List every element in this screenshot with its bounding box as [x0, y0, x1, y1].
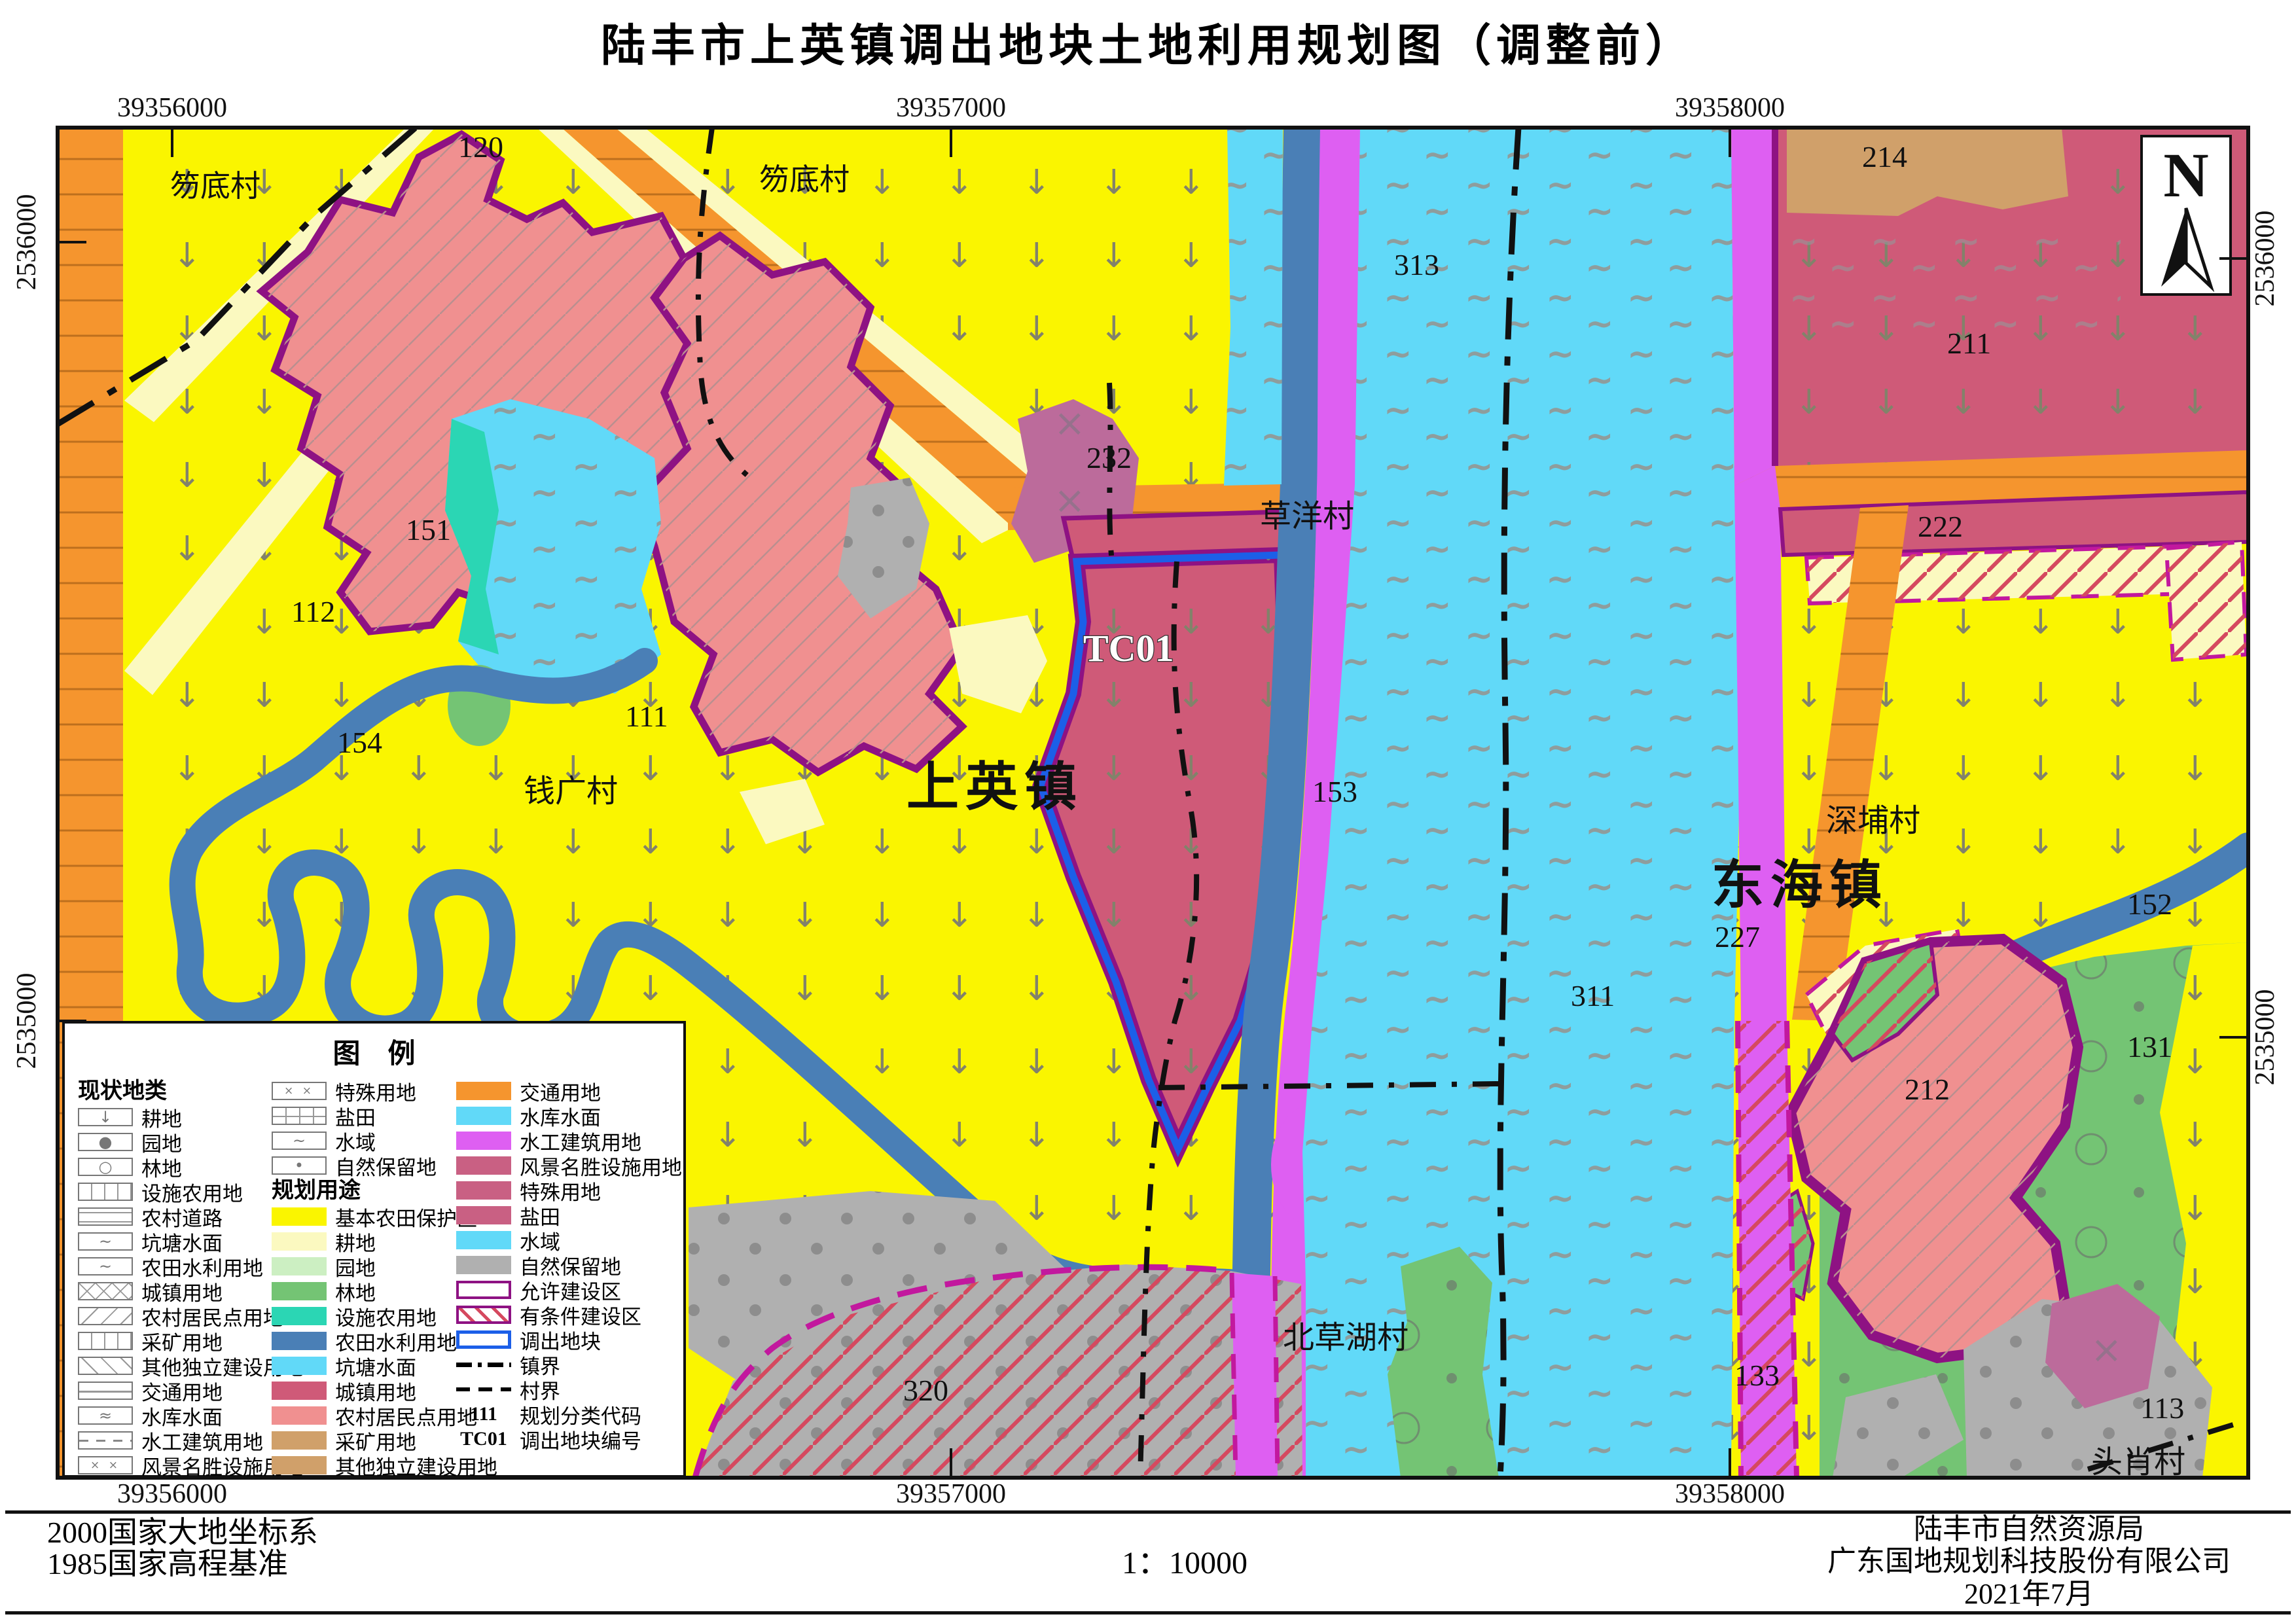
legend-item: × ×风景名胜设施用地 [78, 1453, 304, 1478]
map-label-code: 112 [291, 595, 335, 628]
color-chip [456, 1206, 511, 1224]
legend-item: 有条件建设区 [456, 1302, 682, 1327]
map-label-code: 320 [903, 1374, 948, 1407]
village-boundary-icon [456, 1380, 511, 1399]
allowed-zone-icon [456, 1281, 511, 1299]
nature-reserve-icon: • [272, 1156, 327, 1175]
special-land-icon: × × [272, 1082, 327, 1100]
legend-item: 允许建设区 [456, 1277, 682, 1302]
map-label-tc01: TC01 [1083, 627, 1174, 669]
map-label-code: 120 [458, 130, 503, 164]
hydraulic-icon [78, 1431, 133, 1450]
color-chip [272, 1431, 327, 1450]
grid-label: 39357000 [896, 1479, 1006, 1509]
legend-item: 水库水面 [456, 1103, 682, 1128]
color-chip [456, 1156, 511, 1175]
legend-item: 自然保留地 [456, 1253, 682, 1277]
legend-item: 农村道路 [78, 1204, 304, 1229]
facility-agri-icon [78, 1183, 133, 1201]
legend-item: 调出地块 [456, 1327, 682, 1352]
legend-item: 交通用地 [78, 1378, 304, 1403]
color-chip [456, 1231, 511, 1249]
arable-icon: ↓ [78, 1108, 133, 1126]
legend-box: 图 例 现状地类 ↓耕地 ●园地 ○林地 设施农用地 农村道路 ~坑塘水面 ~农… [62, 1021, 686, 1478]
map-label-code: 151 [406, 513, 451, 546]
north-label: N [2163, 140, 2208, 210]
map-label-village: 北草湖村 [1283, 1321, 1408, 1355]
legend-item: ~农田水利用地 [78, 1254, 304, 1279]
grid-label: 39358000 [1675, 1479, 1785, 1509]
conditional-zone-icon [456, 1306, 511, 1324]
map-label-village: 深埔村 [1826, 804, 1920, 838]
map-label-code: 214 [1862, 140, 1907, 173]
map-label-code: 111 [625, 700, 668, 733]
legend-item: 村界 [456, 1377, 682, 1402]
map-label-code: 152 [2127, 887, 2172, 921]
color-chip [456, 1181, 511, 1200]
town-land-icon [78, 1282, 133, 1300]
map-label-code: 232 [1086, 441, 1132, 474]
parcel-code-sample: TC01 [456, 1428, 511, 1450]
map-sheet: 陆丰市上英镇调出地块土地利用规划图（调整前） ↓ ~ ~ × [0, 0, 2296, 1623]
legend-item: 设施农用地 [78, 1179, 304, 1204]
grid-label: 39356000 [117, 1479, 227, 1509]
color-chip [272, 1382, 327, 1400]
map-label-code: 211 [1947, 327, 1991, 360]
color-chip [272, 1357, 327, 1375]
map-label-code: 154 [337, 726, 382, 759]
legend-title: 图 例 [65, 1031, 683, 1071]
pond-icon: ~ [78, 1232, 133, 1251]
map-scale: 1：10000 [1021, 1537, 1348, 1582]
map-label-village: 头肖村 [2091, 1445, 2185, 1480]
village-land-icon [78, 1307, 133, 1325]
water-waves [1224, 128, 1283, 486]
legend-item: 盐田 [456, 1203, 682, 1228]
grid-label: 39356000 [117, 93, 227, 123]
legend-zones-column: 交通用地 水库水面 水工建筑用地 风景名胜设施用地 特殊用地 盐田 水域 自然保… [456, 1079, 682, 1452]
grid-label: 2536000 [2250, 211, 2280, 307]
legend-current-column: 现状地类 ↓耕地 ●园地 ○林地 设施农用地 农村道路 ~坑塘水面 ~农田水利用… [78, 1079, 304, 1478]
map-label-code: 313 [1394, 248, 1439, 281]
water-waves [1302, 128, 1741, 1478]
water-area-icon: ~ [272, 1132, 327, 1150]
datum-line: 2000国家大地坐标系 [47, 1517, 318, 1548]
sheet-bottom-border [5, 1611, 2291, 1614]
reservoir-icon: ≈ [78, 1406, 133, 1425]
legend-item: ~坑塘水面 [78, 1229, 304, 1254]
map-label-code: 153 [1312, 775, 1357, 808]
legend-item: ≈水库水面 [78, 1403, 304, 1428]
map-label-village: 笏底村 [759, 163, 850, 196]
color-chip [272, 1232, 327, 1251]
salt-field-icon [272, 1107, 327, 1125]
map-label-town: 上英镇 [906, 759, 1083, 817]
org-line: 2021年7月 [1767, 1578, 2291, 1610]
legend-item: 水工建筑用地 [78, 1428, 304, 1453]
legend-item: 111规划分类代码 [456, 1402, 682, 1427]
map-label-village: 钱广村 [524, 774, 618, 809]
color-chip [272, 1282, 327, 1300]
color-chip [456, 1132, 511, 1150]
map-label-code: 113 [2140, 1391, 2184, 1425]
legend-item: 城镇用地 [78, 1279, 304, 1304]
map-label-code: 131 [2127, 1030, 2172, 1063]
conditional-hatch [2166, 542, 2246, 660]
mining-icon [78, 1332, 133, 1350]
map-label-town: 东海镇 [1712, 857, 1888, 915]
planning-code-sample: 111 [456, 1403, 511, 1425]
color-chip [272, 1406, 327, 1425]
org-line: 广东国地规划科技股份有限公司 [1767, 1545, 2291, 1577]
color-chip [272, 1456, 327, 1474]
color-chip [272, 1207, 327, 1226]
map-label-code: 133 [1734, 1359, 1780, 1392]
map-label-code: 212 [1905, 1073, 1950, 1106]
legend-current-header: 现状地类 [78, 1079, 304, 1105]
color-chip [456, 1107, 511, 1125]
legend-item: ↓耕地 [78, 1105, 304, 1130]
forest-circles [1388, 1247, 1499, 1478]
legend-item: 采矿用地 [78, 1329, 304, 1353]
irrigation-icon: ~ [78, 1257, 133, 1275]
legend-item: 水工建筑用地 [456, 1128, 682, 1153]
legend-item: ●园地 [78, 1130, 304, 1154]
town-wave-overlay [1780, 216, 2121, 340]
legend-item: 其他独立建设用地 [78, 1353, 304, 1378]
color-chip [272, 1257, 327, 1275]
map-label-village: 草洋村 [1260, 499, 1354, 534]
map-label-code: 222 [1918, 510, 1963, 543]
grid-label: 2535000 [2250, 990, 2280, 1086]
grid-label: 39357000 [896, 93, 1006, 123]
color-chip [456, 1082, 511, 1100]
datum-info: 2000国家大地坐标系 1985国家高程基准 [47, 1517, 318, 1580]
out-parcel-icon [456, 1330, 511, 1349]
legend-item: 风景名胜设施用地 [456, 1153, 682, 1178]
color-chip [456, 1256, 511, 1274]
grid-label: 39358000 [1675, 93, 1785, 123]
forest-icon: ○ [78, 1158, 133, 1176]
legend-item: TC01调出地块编号 [456, 1427, 682, 1452]
map-label-code: 227 [1715, 920, 1760, 954]
traffic-icon [78, 1382, 133, 1400]
legend-item: 交通用地 [456, 1079, 682, 1103]
color-chip [272, 1307, 327, 1325]
legend-item: ○林地 [78, 1154, 304, 1179]
org-line: 陆丰市自然资源局 [1767, 1513, 2291, 1545]
orchard-icon: ● [78, 1133, 133, 1151]
grid-label: 2536000 [12, 194, 42, 291]
map-label-village: 笏底村 [170, 169, 260, 203]
legend-item: 镇界 [456, 1352, 682, 1377]
organization-info: 陆丰市自然资源局 广东国地规划科技股份有限公司 2021年7月 [1767, 1513, 2291, 1610]
datum-line: 1985国家高程基准 [47, 1548, 318, 1580]
grid-label: 2535000 [12, 973, 42, 1069]
region-hydraulic-ne [1731, 128, 1775, 486]
legend-item: 其他独立建设用地 [272, 1453, 497, 1478]
legend-item: 农村居民点用地 [78, 1304, 304, 1329]
map-label-code: 311 [1571, 979, 1615, 1012]
color-chip [272, 1332, 327, 1350]
legend-item: 水域 [456, 1228, 682, 1253]
north-arrow: N [2142, 136, 2231, 294]
other-construction-icon [78, 1357, 133, 1375]
scenic-icon: × × [78, 1456, 133, 1474]
rural-road-icon [78, 1207, 133, 1226]
legend-item: 特殊用地 [456, 1178, 682, 1203]
region-hydraulic-s [1232, 1273, 1278, 1478]
town-boundary-icon [456, 1355, 511, 1374]
